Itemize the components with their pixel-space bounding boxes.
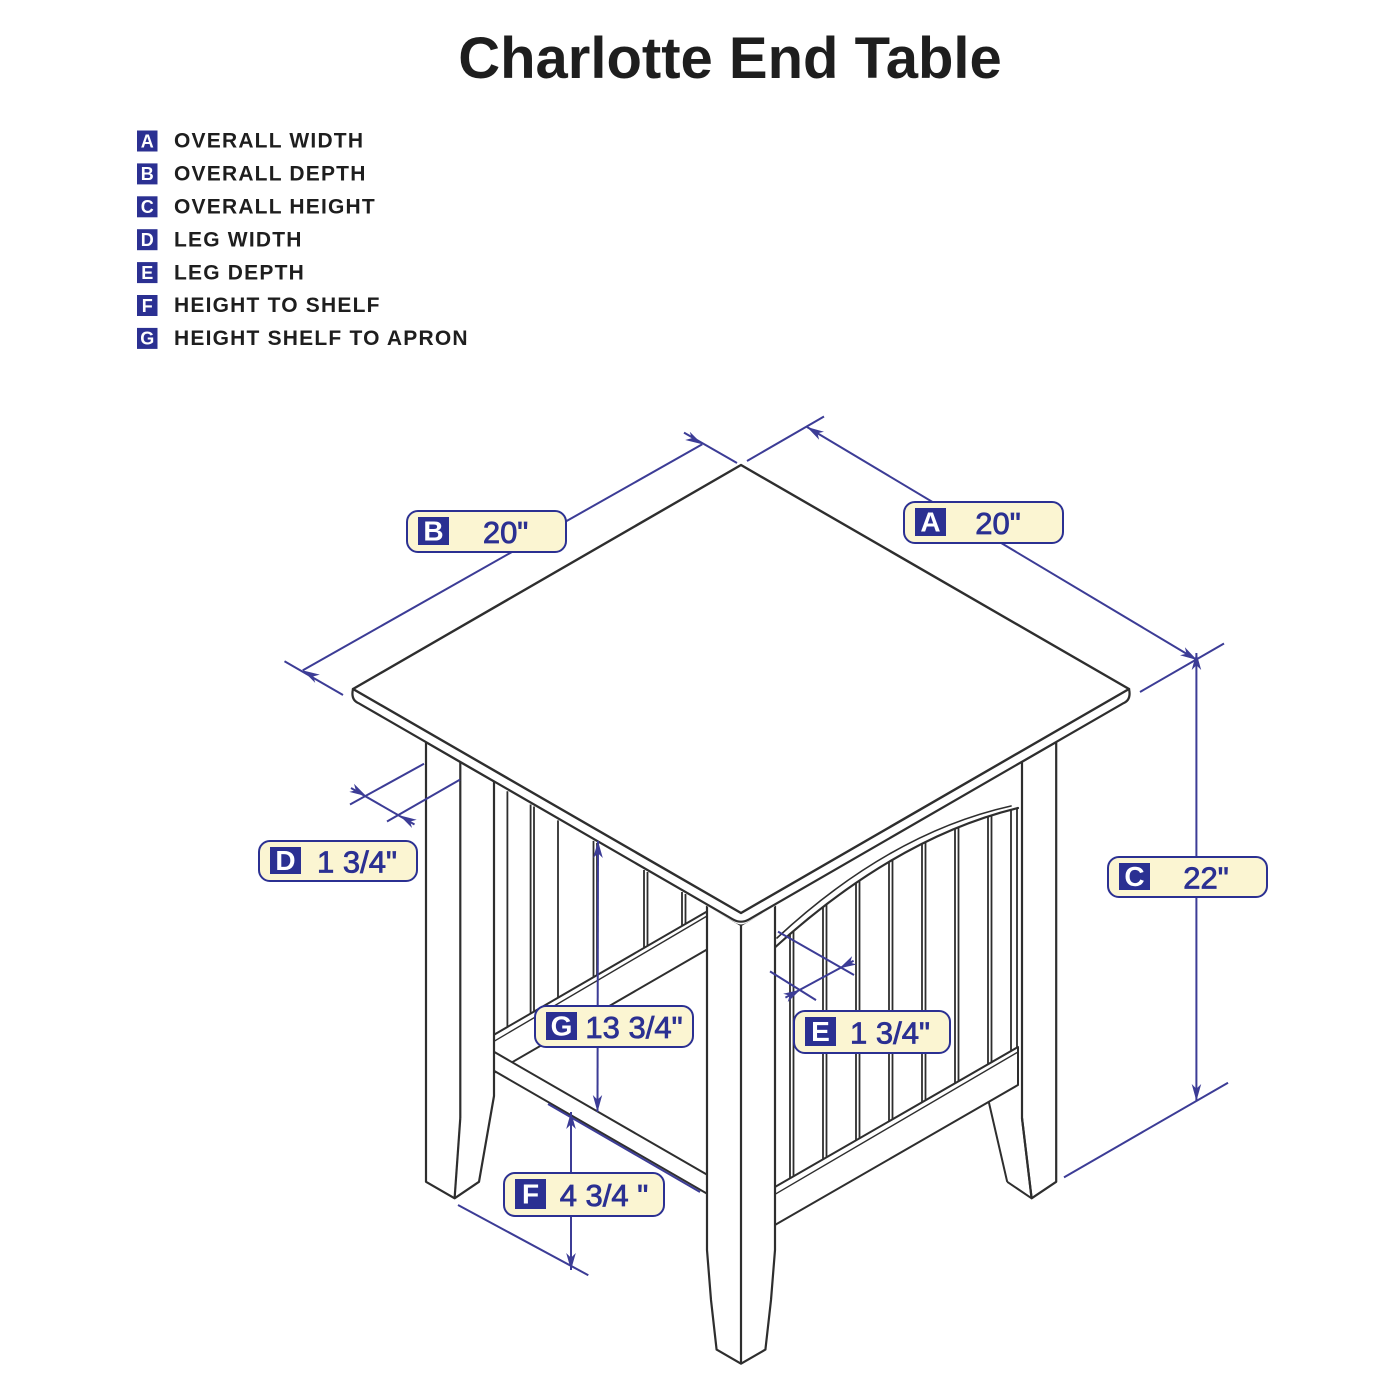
svg-text:OVERALL WIDTH: OVERALL WIDTH: [174, 130, 364, 153]
svg-text:22": 22": [1183, 861, 1229, 896]
svg-text:20": 20": [975, 506, 1021, 541]
svg-text:E: E: [141, 263, 153, 283]
svg-text:G: G: [551, 1011, 573, 1042]
svg-text:LEG DEPTH: LEG DEPTH: [174, 261, 305, 284]
svg-text:F: F: [522, 1179, 539, 1210]
svg-text:1 3/4": 1 3/4": [850, 1016, 930, 1051]
svg-text:D: D: [275, 845, 295, 876]
svg-text:E: E: [811, 1016, 830, 1047]
svg-text:20": 20": [483, 515, 529, 550]
svg-text:D: D: [141, 230, 154, 250]
svg-text:HEIGHT SHELF TO APRON: HEIGHT SHELF TO APRON: [174, 327, 469, 350]
svg-text:LEG WIDTH: LEG WIDTH: [174, 228, 303, 251]
svg-text:13 3/4": 13 3/4": [585, 1010, 682, 1045]
svg-text:OVERALL HEIGHT: OVERALL HEIGHT: [174, 196, 376, 219]
svg-text:Charlotte End Table: Charlotte End Table: [458, 26, 1002, 91]
svg-text:A: A: [920, 507, 940, 538]
svg-text:C: C: [141, 197, 154, 217]
svg-text:OVERALL DEPTH: OVERALL DEPTH: [174, 163, 367, 186]
svg-text:HEIGHT TO SHELF: HEIGHT TO SHELF: [174, 294, 381, 317]
svg-text:1 3/4": 1 3/4": [317, 845, 397, 880]
svg-text:F: F: [142, 296, 153, 316]
svg-text:C: C: [1124, 861, 1144, 892]
svg-text:G: G: [140, 329, 154, 349]
svg-text:B: B: [141, 164, 154, 184]
svg-text:4 3/4 ": 4 3/4 ": [560, 1178, 649, 1213]
svg-text:B: B: [423, 516, 443, 547]
svg-text:A: A: [141, 131, 154, 151]
